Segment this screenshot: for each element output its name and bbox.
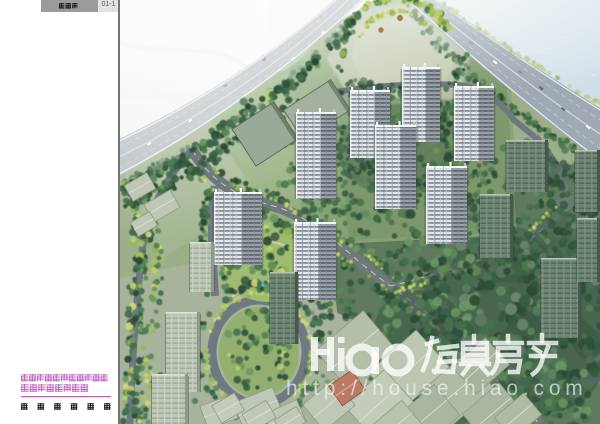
svg-text:http://house.hiao.com: http://house.hiao.com	[286, 377, 588, 400]
